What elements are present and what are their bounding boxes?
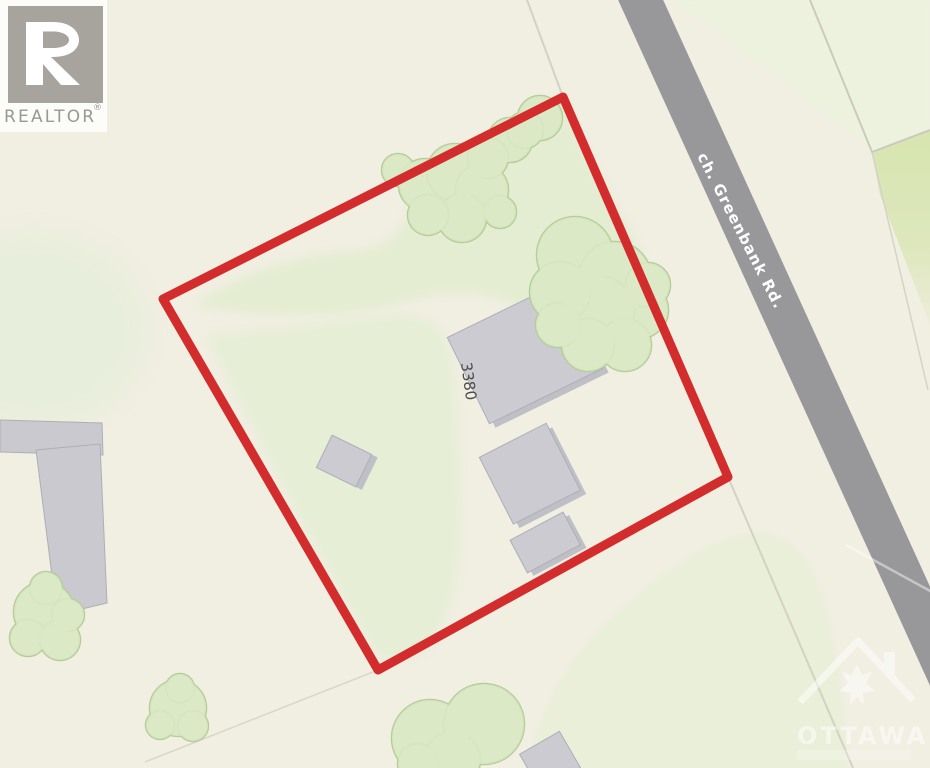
- watermark-subtext-bar: [797, 750, 911, 760]
- watermark-city-text: OTTAWA: [797, 722, 928, 750]
- realtor-logo: REALTOR ®: [0, 0, 107, 132]
- map-canvas[interactable]: 3380: [0, 0, 930, 768]
- registered-mark: ®: [93, 103, 102, 113]
- map-svg[interactable]: 3380: [0, 0, 930, 768]
- realtor-logo-text: REALTOR: [4, 107, 96, 127]
